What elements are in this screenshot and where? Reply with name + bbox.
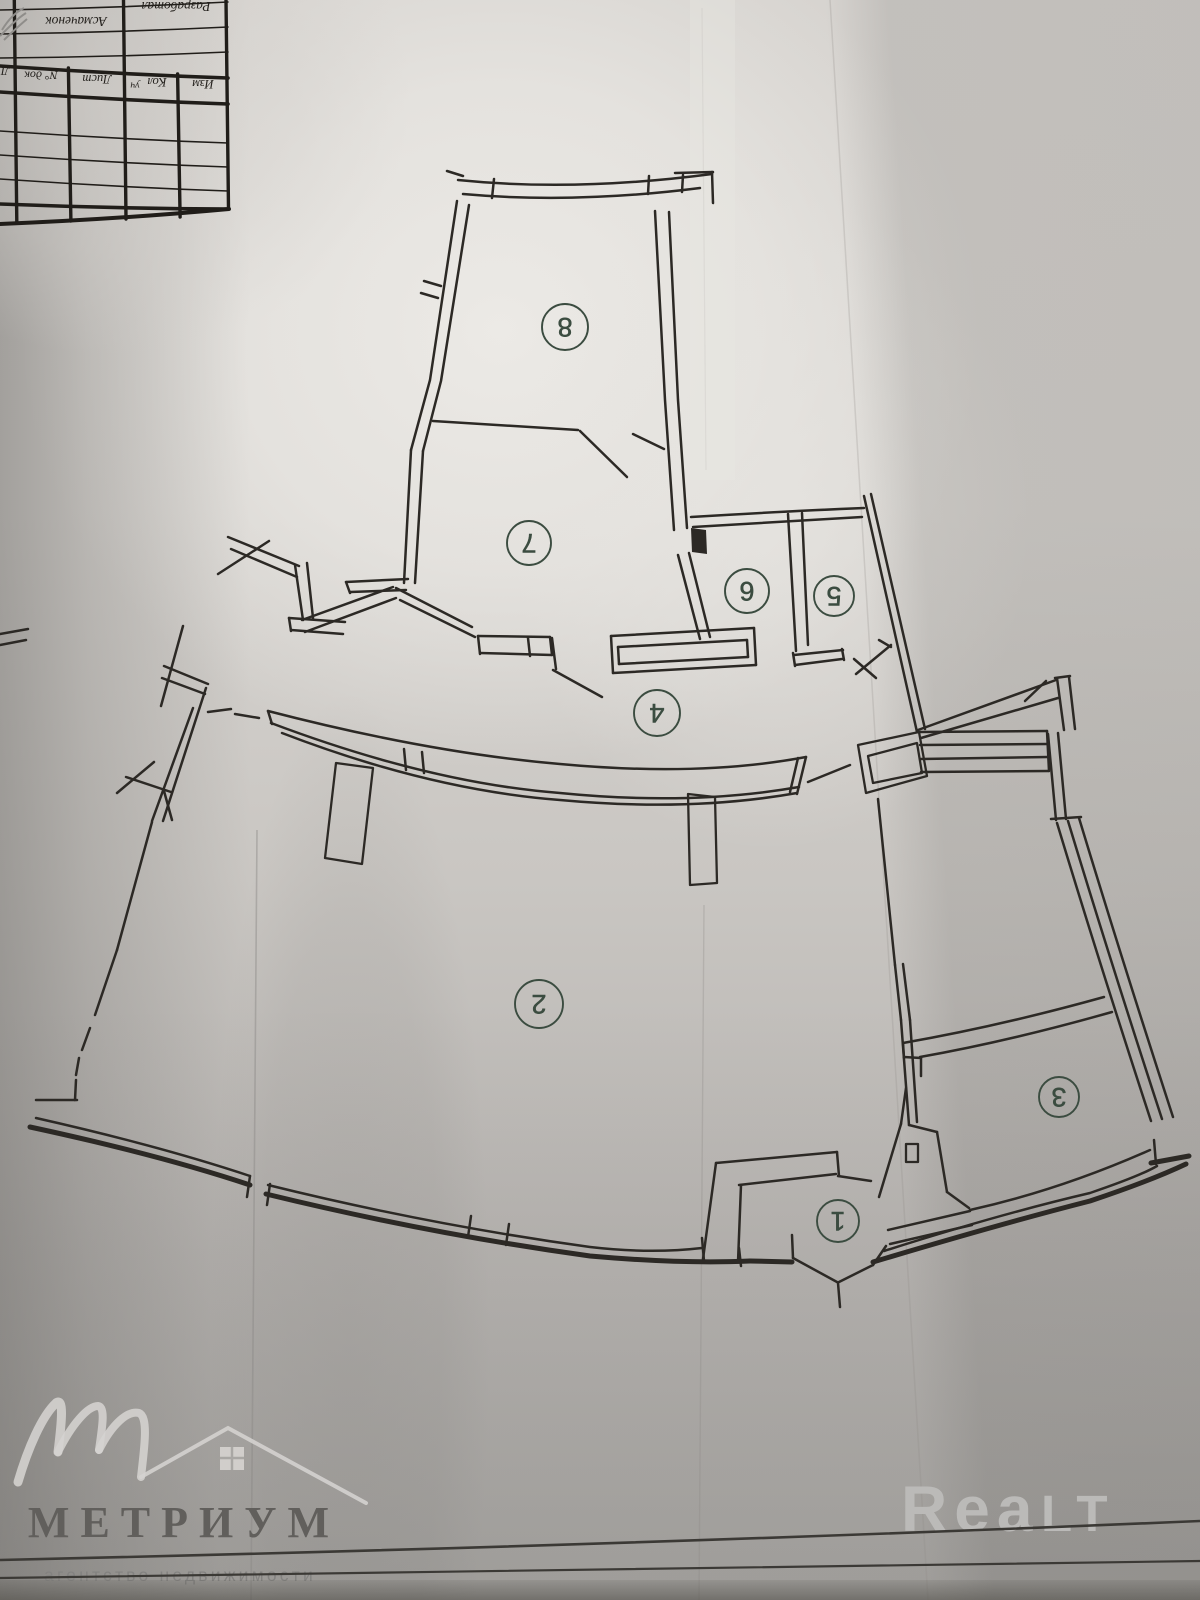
svg-text:7: 7 (521, 528, 536, 558)
svg-text:Изм: Изм (192, 77, 215, 91)
svg-text:Кол: Кол (147, 75, 168, 89)
svg-text:8: 8 (557, 312, 572, 342)
svg-text:N° док: N° док (24, 68, 59, 82)
svg-text:МЕТРИУМ: МЕТРИУМ (28, 1498, 340, 1547)
svg-text:6: 6 (739, 576, 754, 606)
svg-text:Разработал: Разработал (141, 0, 211, 14)
svg-text:4: 4 (649, 698, 664, 728)
svg-text:3: 3 (1051, 1082, 1066, 1112)
svg-text:Rea: Rea (901, 1473, 1039, 1545)
svg-text:2: 2 (531, 989, 546, 1019)
svg-text:LT: LT (1041, 1485, 1116, 1542)
svg-text:Асмаченок: Асмаченок (45, 14, 108, 29)
svg-text:1: 1 (830, 1206, 845, 1236)
svg-text:Л: Л (0, 64, 10, 78)
svg-text:5: 5 (826, 581, 841, 611)
svg-text:уч: уч (130, 80, 140, 91)
svg-text:Лист: Лист (82, 72, 112, 86)
